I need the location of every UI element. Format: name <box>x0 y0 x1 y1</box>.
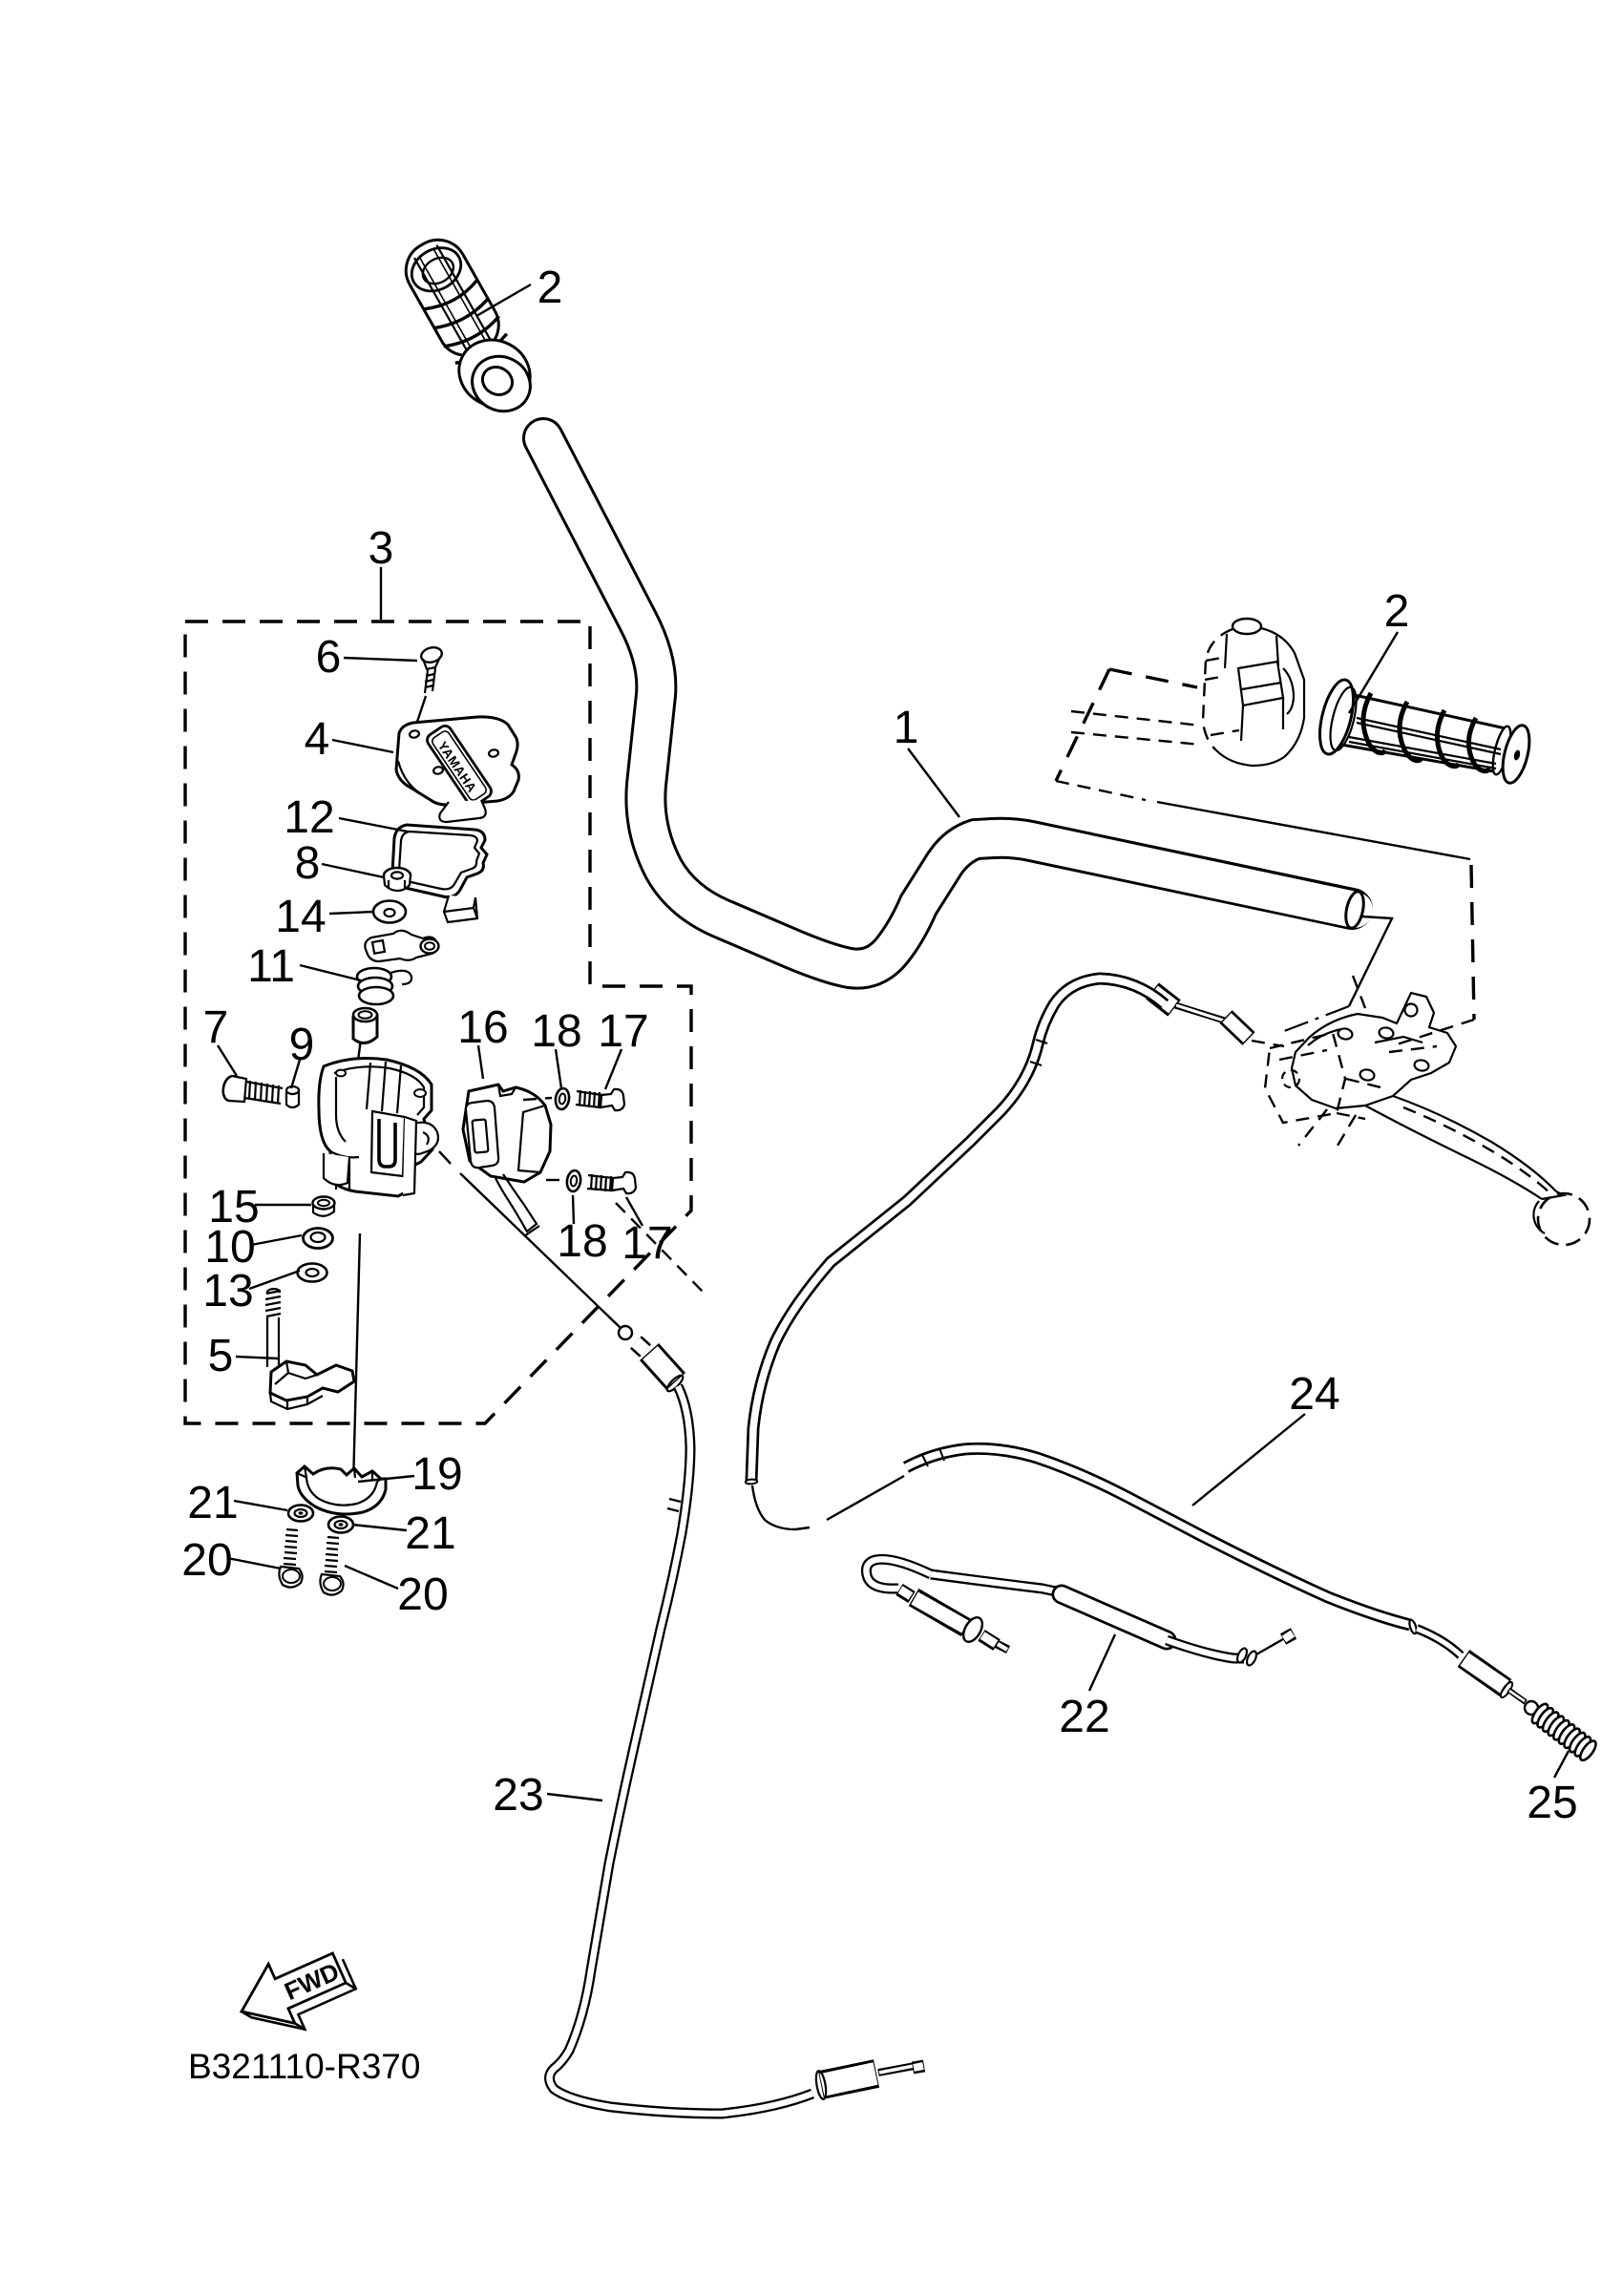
svg-text:23: 23 <box>493 1770 543 1821</box>
svg-text:11: 11 <box>247 941 295 992</box>
svg-text:20: 20 <box>397 1569 448 1620</box>
svg-text:17: 17 <box>622 1218 672 1269</box>
svg-text:14: 14 <box>275 892 326 942</box>
svg-text:6: 6 <box>316 632 342 683</box>
svg-text:1: 1 <box>894 703 919 753</box>
svg-text:13: 13 <box>202 1266 253 1317</box>
svg-text:17: 17 <box>598 1006 648 1057</box>
svg-text:12: 12 <box>284 792 334 843</box>
svg-text:25: 25 <box>1527 1778 1577 1828</box>
svg-text:2: 2 <box>537 263 563 313</box>
svg-text:9: 9 <box>289 1020 315 1070</box>
svg-text:B321110-R370: B321110-R370 <box>188 2047 420 2086</box>
svg-text:20: 20 <box>181 1535 232 1586</box>
svg-text:19: 19 <box>411 1449 462 1500</box>
svg-text:3: 3 <box>369 523 394 574</box>
svg-text:4: 4 <box>305 714 330 765</box>
svg-text:16: 16 <box>457 1002 508 1053</box>
svg-text:2: 2 <box>1384 586 1410 637</box>
svg-text:8: 8 <box>295 838 321 889</box>
svg-text:21: 21 <box>405 1508 455 1559</box>
svg-text:5: 5 <box>208 1331 234 1381</box>
svg-text:22: 22 <box>1059 1692 1109 1742</box>
svg-text:18: 18 <box>531 1006 581 1057</box>
svg-text:7: 7 <box>203 1002 229 1053</box>
svg-text:21: 21 <box>187 1478 238 1528</box>
svg-text:18: 18 <box>557 1216 607 1267</box>
svg-text:24: 24 <box>1289 1369 1339 1420</box>
